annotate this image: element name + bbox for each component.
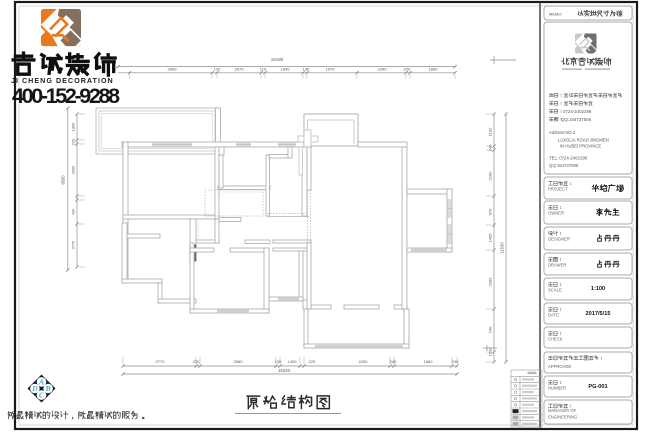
svg-text:970: 970	[488, 208, 493, 215]
svg-text:NUMBER: NUMBER	[548, 386, 566, 391]
svg-text:9550: 9550	[61, 175, 66, 185]
svg-text:0724-2402298: 0724-2402298	[563, 109, 592, 114]
svg-text:4250: 4250	[359, 359, 369, 364]
svg-text:ENGINEERING: ENGINEERING	[548, 415, 577, 420]
svg-text:3990: 3990	[168, 66, 178, 71]
svg-text:PROJECT: PROJECT	[548, 187, 568, 192]
svg-text:120: 120	[214, 66, 221, 71]
svg-text:MANAGER OF: MANAGER OF	[548, 408, 577, 413]
svg-text:1890: 1890	[281, 66, 291, 71]
svg-text:220: 220	[404, 66, 411, 71]
svg-text:3360: 3360	[234, 359, 244, 364]
svg-text:220: 220	[309, 359, 316, 364]
svg-text:1:100: 1:100	[591, 286, 605, 292]
svg-text:1490: 1490	[288, 359, 298, 364]
svg-text:2995: 2995	[488, 277, 493, 287]
svg-text:3300: 3300	[71, 165, 76, 174]
svg-text:2390: 2390	[378, 66, 388, 71]
svg-text:QQ:154737506: QQ:154737506	[561, 117, 592, 122]
svg-text:2017/5/15: 2017/5/15	[586, 311, 611, 317]
svg-text:TEL: 0724-2402298: TEL: 0724-2402298	[549, 156, 588, 161]
svg-text:2190: 2190	[488, 171, 493, 181]
svg-text:130: 130	[275, 359, 282, 364]
svg-text:1860: 1860	[424, 359, 434, 364]
svg-text:1970: 1970	[326, 66, 336, 71]
svg-text:MEMO: MEMO	[549, 12, 561, 17]
svg-text:16190: 16190	[271, 57, 284, 62]
svg-text:PG-001: PG-001	[588, 384, 607, 390]
svg-text:1405: 1405	[488, 233, 493, 243]
svg-text:CHECK: CHECK	[548, 337, 563, 342]
svg-text:1860: 1860	[429, 66, 439, 71]
svg-text:SCALE: SCALE	[548, 288, 562, 293]
svg-text:D: D	[31, 384, 38, 393]
svg-text:DATE: DATE	[548, 313, 559, 318]
svg-text:430: 430	[71, 208, 76, 215]
svg-text:15230: 15230	[278, 368, 291, 373]
svg-text:2670: 2670	[235, 66, 245, 71]
svg-text:B: B	[44, 384, 50, 393]
svg-text:11530: 11530	[500, 242, 505, 254]
svg-text:1300: 1300	[71, 122, 76, 131]
svg-text:110: 110	[260, 66, 267, 71]
svg-text:220: 220	[193, 359, 200, 364]
svg-text:APPROVED: APPROVED	[548, 364, 571, 369]
svg-text:A: A	[38, 378, 44, 387]
svg-text:OWNER: OWNER	[548, 211, 564, 216]
svg-text:1100: 1100	[488, 127, 493, 136]
svg-text:Address:NO.2: Address:NO.2	[549, 130, 576, 135]
svg-text:QQ:154737506: QQ:154737506	[549, 163, 579, 168]
svg-text:240: 240	[488, 144, 493, 151]
svg-text:240: 240	[452, 359, 459, 364]
svg-text:DESIGNER: DESIGNER	[548, 237, 570, 242]
svg-text:IN HUBEI PROVINCE: IN HUBEI PROVINCE	[560, 144, 601, 149]
svg-text:2770: 2770	[156, 359, 166, 364]
svg-text:130: 130	[303, 66, 310, 71]
svg-text:C: C	[39, 391, 45, 400]
svg-text:220: 220	[71, 138, 76, 145]
svg-text:240: 240	[390, 359, 397, 364]
svg-text:DRAWER: DRAWER	[548, 263, 566, 268]
svg-text:240: 240	[488, 326, 493, 333]
svg-text:LUXGLIA ROAD JINGMEN: LUXGLIA ROAD JINGMEN	[558, 138, 609, 143]
svg-text:3770: 3770	[71, 240, 76, 249]
